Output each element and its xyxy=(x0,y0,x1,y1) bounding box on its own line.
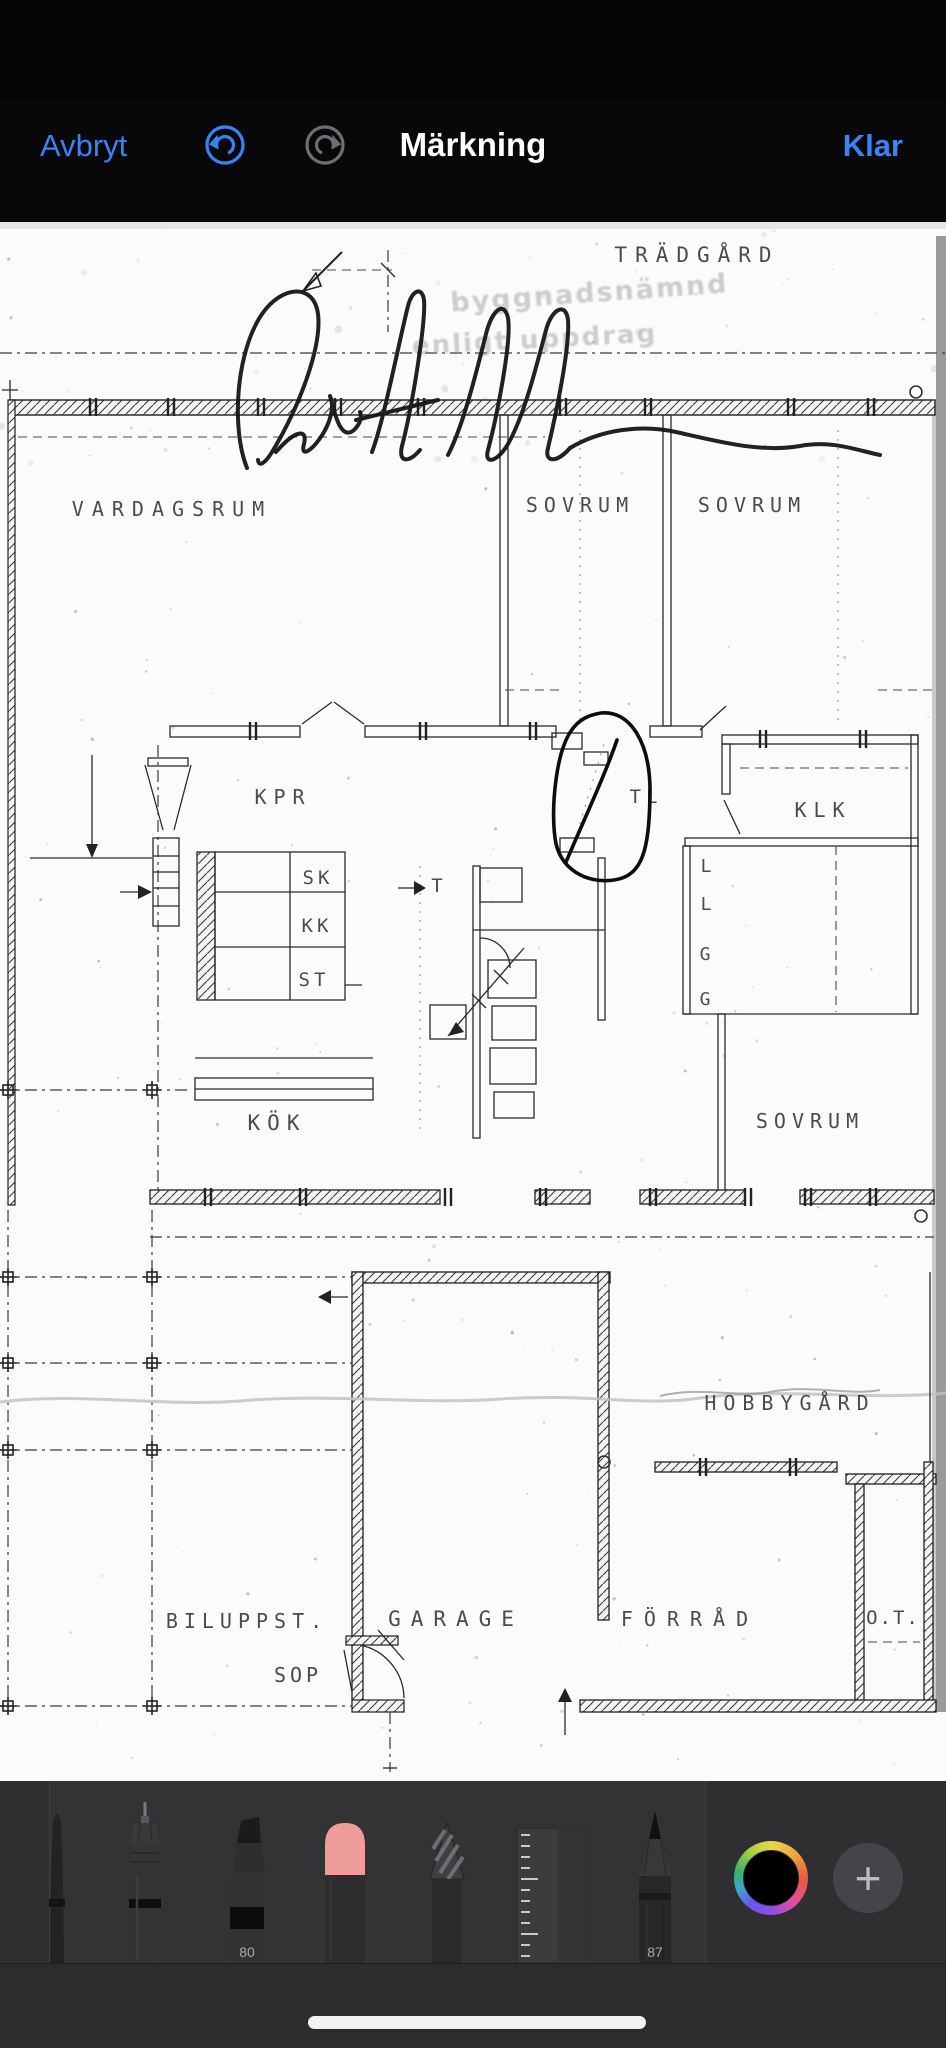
label-g2: G xyxy=(700,989,711,1010)
scan-edge-band xyxy=(936,236,946,1712)
plus-icon: + xyxy=(855,1852,882,1904)
floor-plan-drawing: TRÄDGÅRD byggnadsnämnd enligt uppdrag VA… xyxy=(0,222,946,1781)
label-sovrum-2: SOVRUM xyxy=(698,493,806,517)
marker-size-label: 80 xyxy=(239,1944,255,1960)
label-sovrum-3: SOVRUM xyxy=(756,1109,864,1133)
tool-pencil[interactable]: 87 xyxy=(639,1811,671,1963)
label-vardagsrum: VARDAGSRUM xyxy=(72,497,272,521)
undo-button[interactable] xyxy=(202,122,248,168)
tool-eraser[interactable] xyxy=(325,1823,365,1963)
navigation-bar: Avbryt Märkning xyxy=(0,100,946,222)
label-sovrum-1: SOVRUM xyxy=(526,493,634,517)
markup-editor-screen: Avbryt Märkning xyxy=(0,0,946,2048)
label-klk: KLK xyxy=(794,798,851,822)
label-kpr: KPR xyxy=(254,785,311,809)
label-sk: SK xyxy=(303,867,334,889)
tool-ruler[interactable] xyxy=(517,1828,585,1963)
undo-icon xyxy=(202,156,248,171)
tool-lasso-pencil[interactable] xyxy=(430,1823,464,1963)
label-st: ST xyxy=(299,969,330,991)
page-title: Märkning xyxy=(0,126,946,164)
redo-icon xyxy=(302,156,348,171)
tool-fine-brush[interactable] xyxy=(49,1813,65,1963)
label-kk: KK xyxy=(302,915,333,937)
markup-canvas[interactable]: TRÄDGÅRD byggnadsnämnd enligt uppdrag VA… xyxy=(0,222,946,1781)
tool-fineliner-pen[interactable] xyxy=(129,1802,161,1963)
tool-chisel-marker[interactable]: 80 xyxy=(230,1817,265,1963)
redo-button[interactable] xyxy=(302,122,348,168)
selected-color-swatch xyxy=(743,1850,799,1906)
label-garage: GARAGE xyxy=(388,1607,524,1631)
label-g1: G xyxy=(700,944,711,965)
pencil-size-label: 87 xyxy=(647,1944,663,1960)
color-picker-wheel[interactable] xyxy=(734,1841,808,1915)
done-button[interactable]: Klar xyxy=(843,128,903,164)
label-sop: SOP xyxy=(274,1663,322,1687)
label-forrad: FÖRRÅD xyxy=(621,1607,759,1631)
label-t: T xyxy=(431,875,442,897)
label-ot: O.T. xyxy=(866,1607,920,1629)
markup-tool-tray: 80 xyxy=(0,1781,946,1963)
label-tradgard: TRÄDGÅRD xyxy=(614,241,779,267)
label-l2: L xyxy=(701,894,712,915)
add-tool-button[interactable]: + xyxy=(833,1843,903,1913)
status-bar xyxy=(0,0,946,100)
label-biluppst: BILUPPST. xyxy=(166,1609,328,1633)
cancel-button[interactable]: Avbryt xyxy=(40,128,127,164)
label-hobbygard: HOBBYGÅRD xyxy=(704,1391,875,1415)
label-tl: TL xyxy=(630,786,663,808)
home-indicator[interactable] xyxy=(308,2016,646,2029)
bottom-bar xyxy=(0,1963,946,2048)
label-kok: KÖK xyxy=(248,1110,307,1135)
label-l1: L xyxy=(701,856,712,877)
